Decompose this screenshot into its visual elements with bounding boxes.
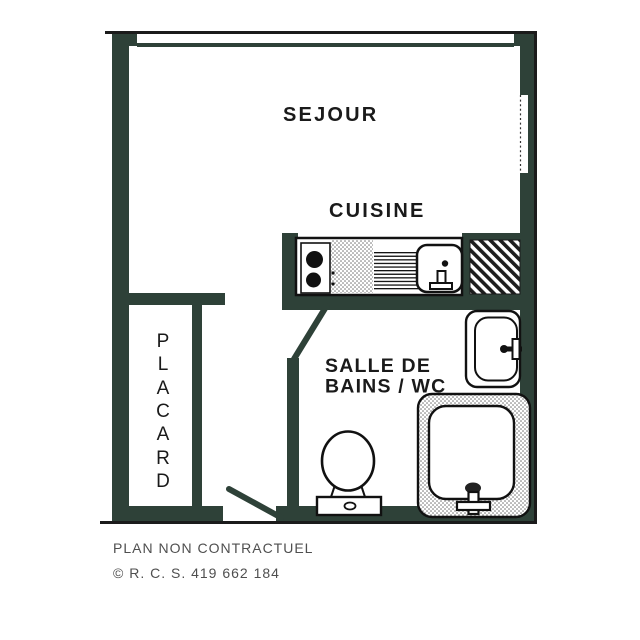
floor-plan: SEJOUR CUISINE SALLE DE BAINS / WC P L A…: [0, 0, 640, 640]
toilet-icon: [317, 432, 381, 516]
window-top-inner-line: [137, 43, 514, 47]
toilet-bowl: [322, 432, 374, 491]
toilet-flush-button: [345, 503, 356, 510]
placard-letter: A: [157, 424, 170, 445]
plan-disclaimer: PLAN NON CONTRACTUEL: [113, 540, 313, 556]
outline-right: [534, 31, 537, 524]
bathroom-door-swing-icon: [294, 306, 327, 359]
washbasin-icon: [466, 311, 522, 387]
cooktop-knob-dot: [331, 282, 334, 285]
placard-letter: D: [156, 471, 170, 492]
doors: [229, 306, 327, 518]
placard-letter: P: [157, 331, 170, 352]
placard-letter: R: [156, 448, 170, 469]
bathroom-left-wall: [287, 358, 299, 506]
scanned-floor-plan-page: SEJOUR CUISINE SALLE DE BAINS / WC P L A…: [0, 0, 640, 640]
room-label-sejour: SEJOUR: [283, 104, 378, 126]
burner-icon: [306, 251, 323, 268]
sink-faucet-dot: [442, 260, 448, 266]
room-label-salle-de-bains-line2: BAINS / WC: [325, 376, 446, 398]
washbasin-tap-cross: [513, 339, 520, 359]
placard-top-wall: [112, 293, 225, 305]
wall-bottom-left: [112, 506, 223, 521]
entrance-door-swing-icon: [229, 489, 281, 518]
outline-top: [105, 31, 537, 34]
room-label-cuisine: CUISINE: [329, 200, 426, 222]
sink-basin-icon: [417, 245, 462, 292]
worktop-stipple-icon: [331, 240, 373, 293]
plan-registration: © R. C. S. 419 662 184: [113, 565, 280, 581]
cooktop-knob-dot: [331, 271, 334, 274]
placard-letter: A: [157, 378, 170, 399]
placard-letter: L: [158, 354, 169, 375]
outline-bottom: [100, 521, 537, 524]
shower-icon: [418, 394, 530, 517]
bathroom-top-wall: [282, 296, 534, 310]
shower-tap-horizontal: [457, 502, 490, 510]
wall-left: [112, 34, 129, 521]
burner-icon: [306, 273, 321, 288]
room-label-salle-de-bains-line1: SALLE DE: [325, 355, 431, 377]
cooktop-icon: [301, 243, 335, 293]
room-label-placard: P L A C A R D: [156, 331, 170, 492]
right-wall-window-icon: [519, 95, 528, 173]
duct-hatch-icon: [470, 240, 520, 294]
placard-right-wall: [192, 305, 202, 521]
washbasin-faucet-dot: [500, 345, 508, 353]
sink-tap-base: [430, 283, 452, 289]
kitchen-counter-icon: [296, 238, 462, 295]
placard-letter: C: [156, 401, 170, 422]
